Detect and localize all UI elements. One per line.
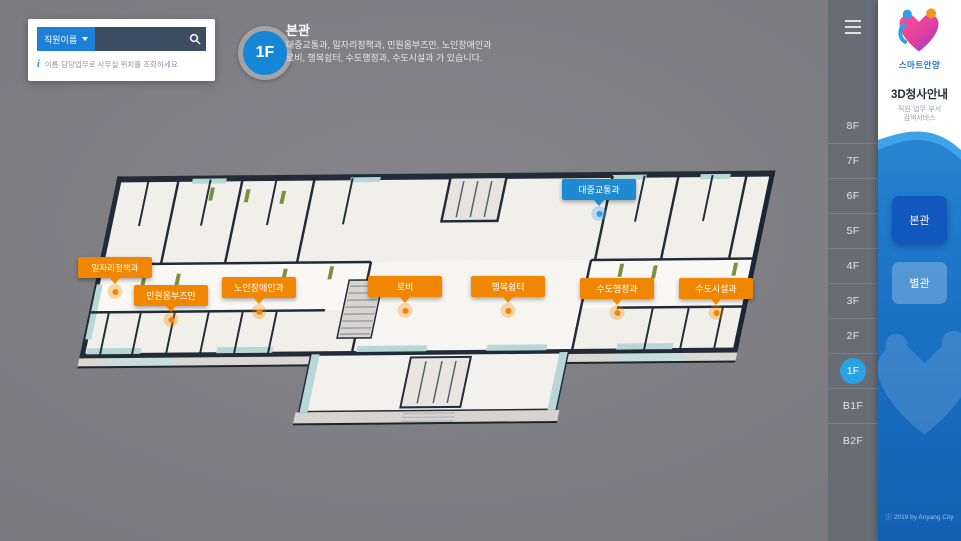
search-button[interactable] — [184, 27, 206, 51]
room-label: 로비 — [368, 276, 442, 297]
panel-title: 3D청사안내 — [878, 86, 961, 102]
floor-description: 대중교통과, 일자리정책과, 민원옴부즈만, 노인장애인과 로비, 행복쉼터, … — [286, 39, 491, 65]
location-dot — [398, 303, 413, 318]
room-label: 행복쉼터 — [471, 276, 545, 297]
location-dot — [610, 305, 625, 320]
chevron-down-icon — [82, 37, 88, 41]
annex-building-button[interactable]: 별관 — [892, 262, 947, 304]
room-label: 노인장애인과 — [222, 277, 296, 298]
floor-item-6f[interactable]: 6F — [828, 178, 878, 213]
room-label-button[interactable]: 로비 — [368, 276, 442, 297]
floor-item-5f[interactable]: 5F — [828, 213, 878, 248]
floor-description-line1: 대중교통과, 일자리정책과, 민원옴부즈만, 노인장애인과 — [286, 39, 491, 52]
search-field — [95, 27, 206, 51]
copyright-text: ⓒ 2019 by Anyang City — [878, 511, 961, 521]
floor-nav: 8F 7F 6F 5F 4F 3F 2F 1F B1F B2F — [828, 108, 878, 458]
floor-item-7f[interactable]: 7F — [828, 143, 878, 178]
hamburger-icon — [845, 20, 861, 22]
info-icon: i — [37, 59, 40, 70]
search-icon — [189, 33, 201, 45]
room-label: 수도시설과 — [679, 278, 753, 299]
location-dot — [252, 304, 267, 319]
location-dot — [501, 303, 516, 318]
selected-floor-bubble: 1F — [840, 358, 866, 384]
room-label-button[interactable]: 수도시설과 — [679, 278, 753, 299]
menu-button[interactable] — [845, 20, 861, 34]
room-label-button[interactable]: 일자리정책과 — [78, 257, 152, 278]
room-label-button[interactable]: 노인장애인과 — [222, 277, 296, 298]
floor-item-8f[interactable]: 8F — [828, 108, 878, 143]
room-label: 수도행정과 — [580, 278, 654, 299]
search-category-label: 직원이름 — [44, 33, 77, 46]
room-label-selected: 대중교통과 — [562, 179, 636, 200]
room-label: 민원옴부즈만 — [134, 285, 208, 306]
search-hint-text: 이름·담당업무로 사무실 위치를 조회하세요 — [45, 59, 178, 70]
floor-rail: 8F 7F 6F 5F 4F 3F 2F 1F B1F B2F — [828, 0, 878, 541]
location-dot — [592, 206, 607, 221]
floor-item-1f-selected[interactable]: 1F — [828, 353, 878, 388]
current-floor-badge: 1F — [238, 26, 292, 80]
logo-text: 스마트안양 — [878, 59, 961, 71]
staff-search-card: 직원이름 i 이름·담당업무로 사무실 위치를 조회하세요 — [28, 19, 215, 81]
smart-anyang-logo-icon — [893, 6, 945, 58]
search-category-dropdown[interactable]: 직원이름 — [37, 27, 95, 51]
floor-item-b2f[interactable]: B2F — [828, 423, 878, 458]
panel-subtitle-line2: 검색서비스 — [878, 113, 961, 123]
heart-watermark-icon — [878, 325, 961, 450]
location-dot — [164, 312, 179, 327]
building-title: 본관 — [286, 20, 310, 39]
room-label-button[interactable]: 대중교통과 — [562, 179, 636, 200]
building-panel: 스마트안양 3D청사안내 직원·업무·부서 검색서비스 본관 별관 ⓒ 2019… — [878, 0, 961, 541]
room-label-button[interactable]: 행복쉼터 — [471, 276, 545, 297]
floor-item-2f[interactable]: 2F — [828, 318, 878, 353]
room-label-button[interactable]: 수도행정과 — [580, 278, 654, 299]
floor-item-b1f[interactable]: B1F — [828, 388, 878, 423]
floor-item-4f[interactable]: 4F — [828, 248, 878, 283]
room-label: 일자리정책과 — [78, 257, 152, 278]
location-dot — [108, 284, 123, 299]
floor-description-line2: 로비, 행복쉼터, 수도행정과, 수도시설과 가 있습니다. — [286, 52, 491, 65]
search-hint: i 이름·담당업무로 사무실 위치를 조회하세요 — [37, 59, 206, 70]
search-input[interactable] — [95, 34, 184, 44]
floor-item-3f[interactable]: 3F — [828, 283, 878, 318]
room-label-button[interactable]: 민원옴부즈만 — [134, 285, 208, 306]
location-dot — [709, 305, 724, 320]
main-building-button[interactable]: 본관 — [892, 196, 947, 243]
